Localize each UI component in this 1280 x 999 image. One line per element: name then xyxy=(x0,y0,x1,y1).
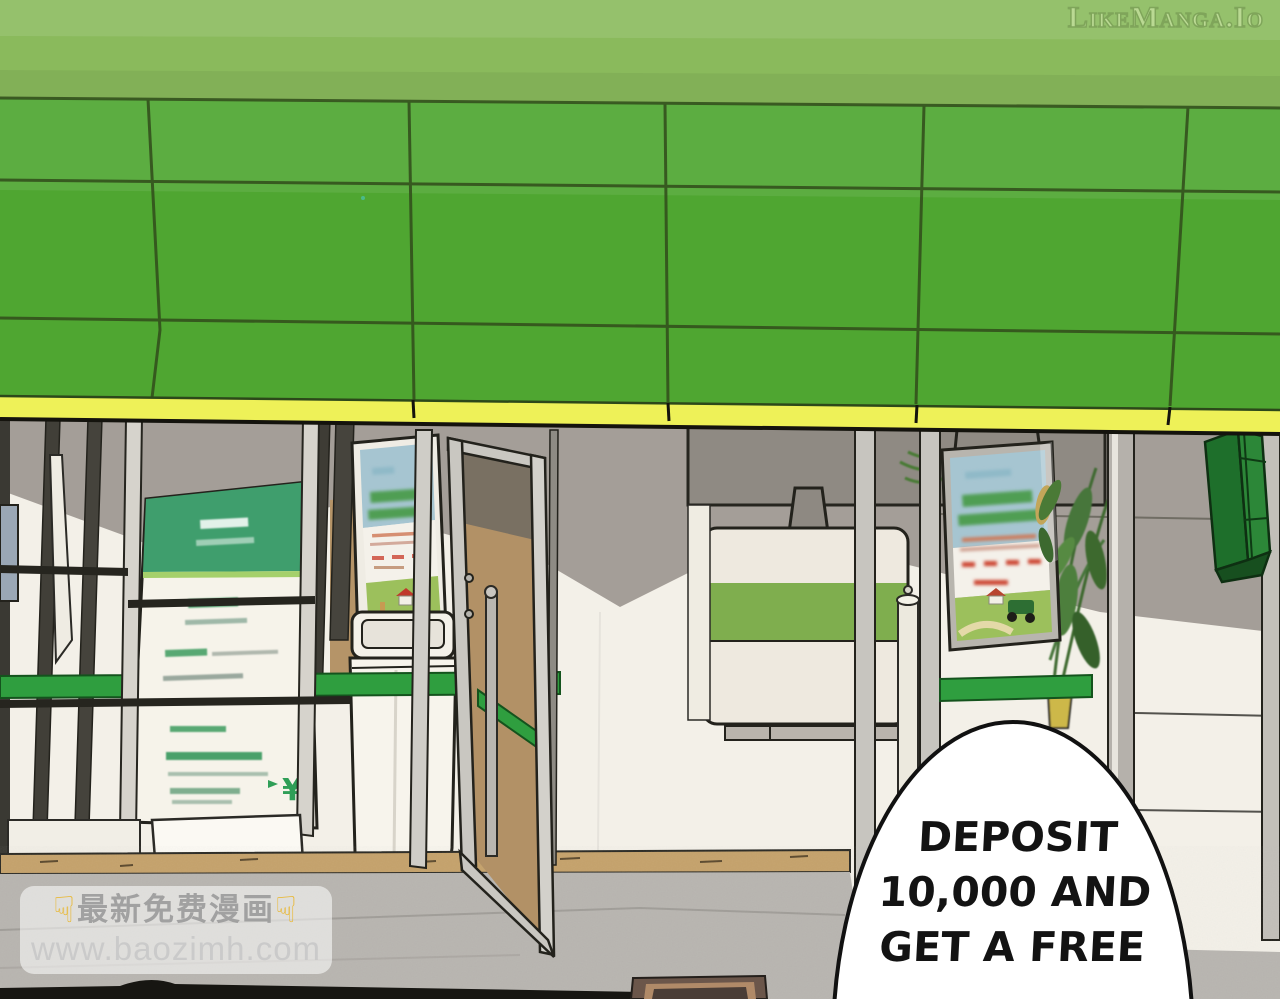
booth-green-band xyxy=(703,583,908,641)
bank-sign-board: ¥ xyxy=(130,482,317,828)
awning xyxy=(0,0,1280,434)
bubble-line-3: GET A FREE xyxy=(834,920,1191,975)
booth-bench xyxy=(703,528,908,740)
bottom-watermark: ☟最新免费漫画☟ www.baozimh.com xyxy=(20,886,332,974)
trash-bin xyxy=(350,612,456,869)
bottom-watermark-url: www.baozimh.com xyxy=(20,929,332,969)
bottom-watermark-text: 最新免费漫画 xyxy=(77,892,275,928)
manga-panel: ¥ xyxy=(0,0,1280,999)
blue-panel xyxy=(0,505,18,601)
point-down-icon: ☟ xyxy=(53,890,77,931)
right-rail xyxy=(940,675,1092,701)
interior-pillar xyxy=(688,505,710,720)
door-handle xyxy=(485,586,497,856)
bubble-line-1: DEPOSIT xyxy=(839,810,1196,865)
bubble-line-2: 10,000 AND xyxy=(837,865,1194,920)
green-wall-box xyxy=(1205,430,1270,582)
promo-poster-right xyxy=(942,420,1066,650)
speech-bubble-text: DEPOSIT 10,000 AND GET A FREE xyxy=(834,810,1197,975)
point-down-icon: ☟ xyxy=(275,890,299,931)
site-watermark: LikeManga.Io xyxy=(1068,1,1264,35)
doormat xyxy=(631,976,767,999)
bottom-watermark-line1: ☟最新免费漫画☟ xyxy=(20,892,332,929)
